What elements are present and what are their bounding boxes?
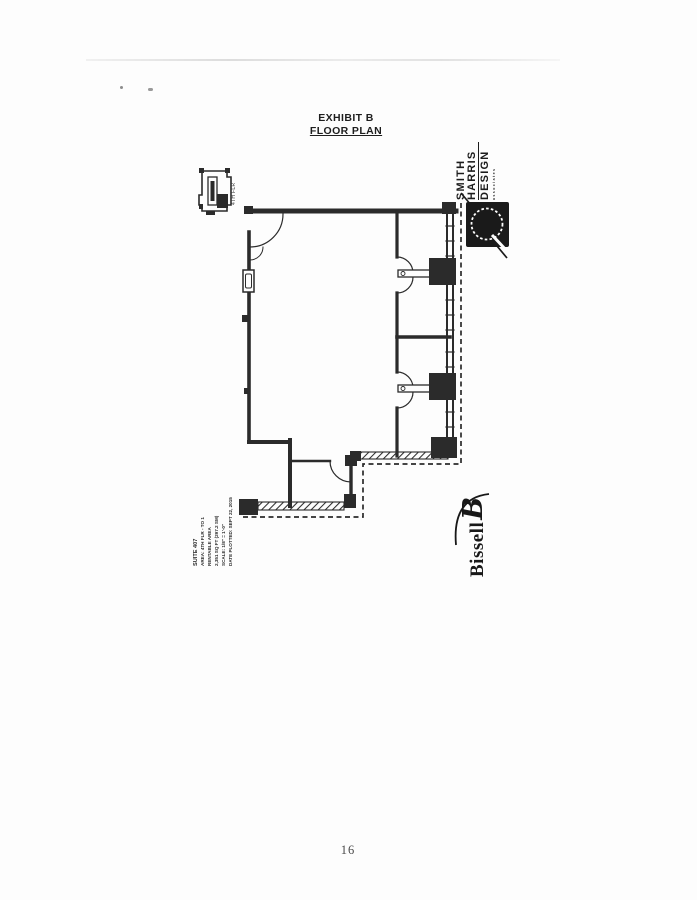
smith-harris-tagline: associates (492, 142, 496, 200)
title-block-line: SUITE 407 (192, 487, 200, 566)
corner-column (431, 437, 457, 458)
drawing-title-block: SUITE 407 AREA: 4TH FLR - TO 1 RENTABLE … (192, 487, 238, 566)
title-block-line: 2,351 SQ FT (297.2 SM) (214, 487, 221, 566)
key-plan-label: 4TH FLR (231, 177, 239, 205)
title-block-line: RENTABLE AREA (207, 487, 214, 566)
bissell-monogram: B (460, 497, 487, 520)
key-plan-label-wrap: 4TH FLR (231, 177, 239, 205)
floor-plan-drawing (0, 0, 697, 900)
bissell-logo: Bissell B (448, 487, 507, 577)
key-plan (199, 168, 231, 215)
smith-harris-logo: SMITH HARRIS DESIGN associates (456, 142, 510, 200)
smith-harris-line2: HARRIS (467, 142, 478, 200)
title-block-line: DATE PLOTTED: SEPT 22, 2015 (228, 487, 235, 566)
title-block-line: AREA: 4TH FLR - TO 1 (200, 487, 207, 566)
page-number: 16 (320, 843, 376, 858)
title-block-line: SCALE: 1/8" = 1'-0" (221, 487, 228, 566)
smith-harris-line3: DESIGN (478, 142, 491, 200)
scanned-document-page: { "document": { "title_line1": "EXHIBIT … (0, 0, 697, 900)
bissell-wordmark: Bissell (468, 522, 487, 577)
suite-walls (239, 202, 456, 515)
smith-harris-logo-mark (461, 193, 509, 258)
